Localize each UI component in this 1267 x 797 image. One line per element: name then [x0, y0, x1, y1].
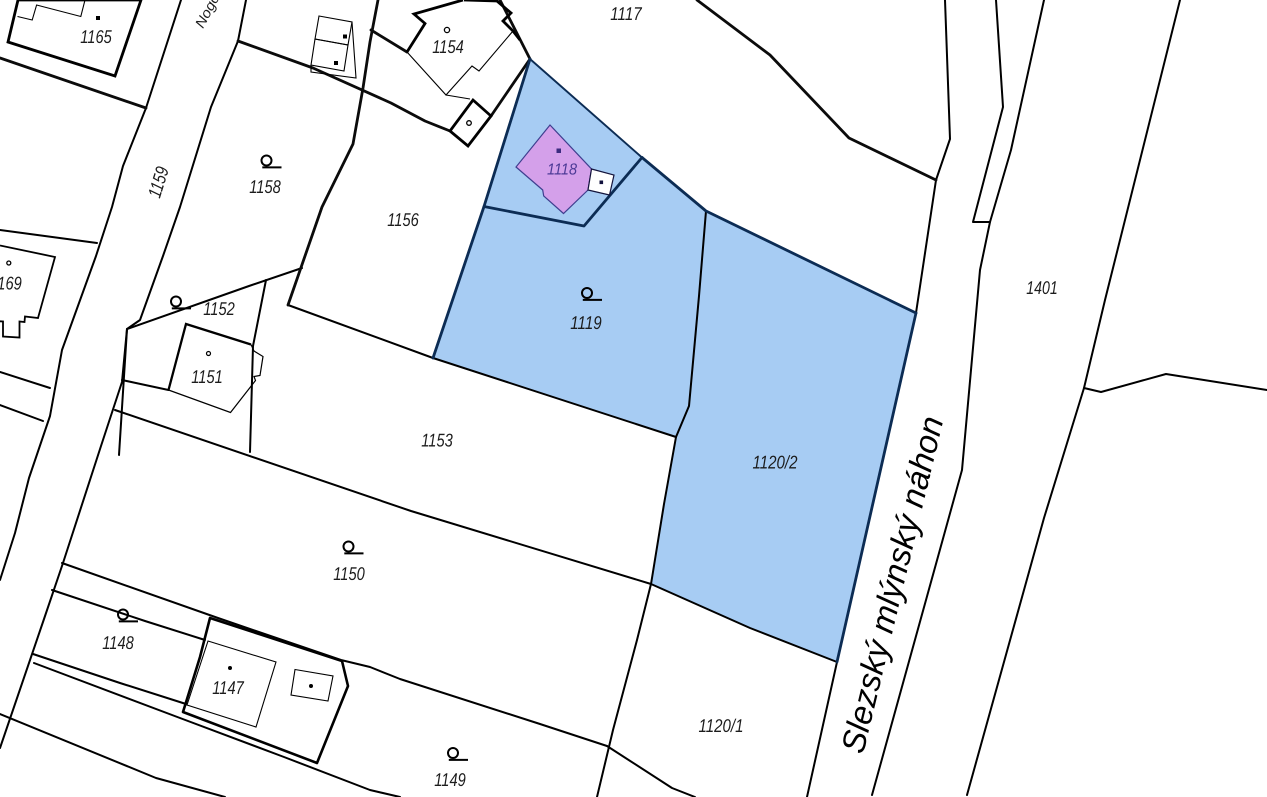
- svg-text:1147: 1147: [212, 677, 244, 698]
- svg-text:1151: 1151: [191, 366, 223, 387]
- svg-text:1120/1: 1120/1: [699, 715, 744, 736]
- svg-text:1119: 1119: [570, 312, 602, 333]
- svg-text:1154: 1154: [432, 36, 464, 57]
- svg-text:1156: 1156: [387, 209, 419, 230]
- svg-text:1118: 1118: [547, 162, 577, 179]
- svg-text:1169: 1169: [0, 273, 22, 294]
- svg-text:1153: 1153: [421, 430, 453, 451]
- svg-text:1120/2: 1120/2: [753, 452, 799, 473]
- svg-text:1401: 1401: [1026, 277, 1058, 298]
- svg-text:1152: 1152: [203, 298, 235, 319]
- svg-text:1158: 1158: [249, 176, 281, 197]
- svg-text:1148: 1148: [102, 632, 134, 653]
- svg-text:1165: 1165: [80, 26, 112, 47]
- svg-text:1149: 1149: [434, 769, 466, 790]
- svg-text:1117: 1117: [610, 3, 642, 24]
- svg-text:1150: 1150: [333, 563, 365, 584]
